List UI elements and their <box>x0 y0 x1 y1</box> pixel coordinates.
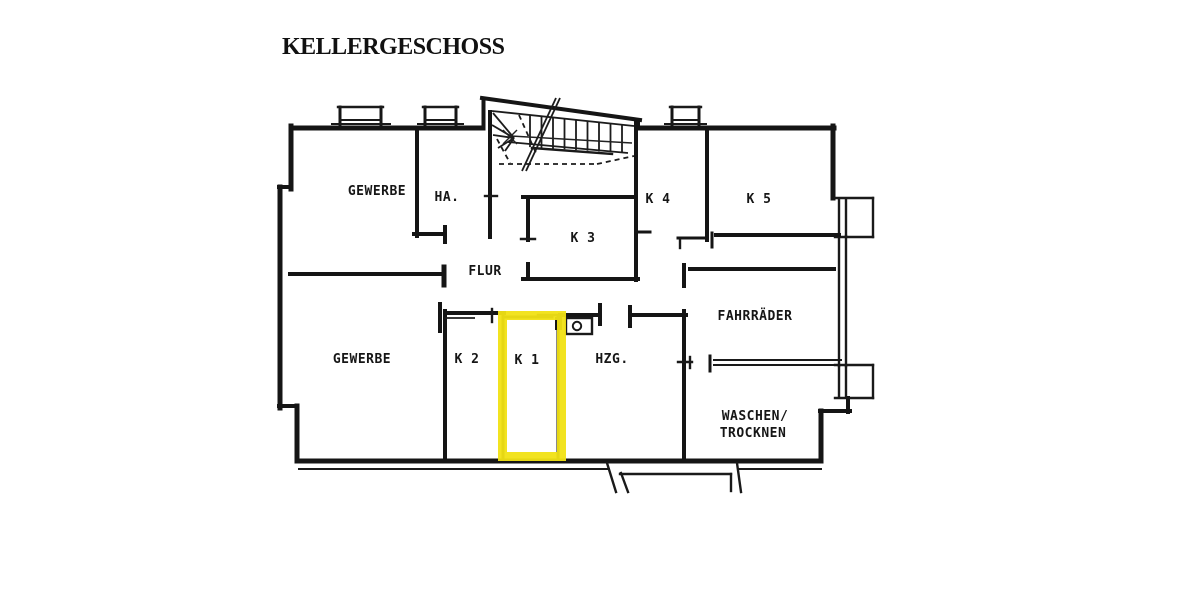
room-label-k5: K 5 <box>747 192 772 207</box>
room-label-gewerbe-top: GEWERBE <box>348 184 406 199</box>
room-label-fahrraeder: FAHRRÄDER <box>718 308 793 324</box>
window-top-1 <box>332 107 390 128</box>
window-right-1 <box>835 198 873 237</box>
window-top-3 <box>665 107 706 128</box>
room-label-ha: HA. <box>435 190 460 205</box>
room-k1-highlight <box>503 316 562 457</box>
floorplan-drawing: GEWERBE HA. K 3 K 4 K 5 FLUR GEWERBE K 2… <box>0 0 1200 600</box>
room-label-k2: K 2 <box>455 352 480 367</box>
room-label-k4: K 4 <box>646 192 671 207</box>
window-top-2 <box>418 107 463 128</box>
room-label-hzg: HZG. <box>595 352 628 367</box>
room-label-gewerbe-bottom: GEWERBE <box>333 352 391 367</box>
room-label-flur: FLUR <box>468 264 501 279</box>
room-label-trocknen: TROCKNEN <box>720 426 787 441</box>
entrance-stair <box>607 463 741 492</box>
room-label-k3: K 3 <box>571 231 596 246</box>
room-label-waschen: WASCHEN/ <box>722 409 789 424</box>
window-right-2 <box>835 365 873 398</box>
floorplan-page: KELLERGESCHOSS <box>0 0 1200 600</box>
boiler-symbol <box>566 318 592 334</box>
room-label-k1: K 1 <box>515 353 540 368</box>
